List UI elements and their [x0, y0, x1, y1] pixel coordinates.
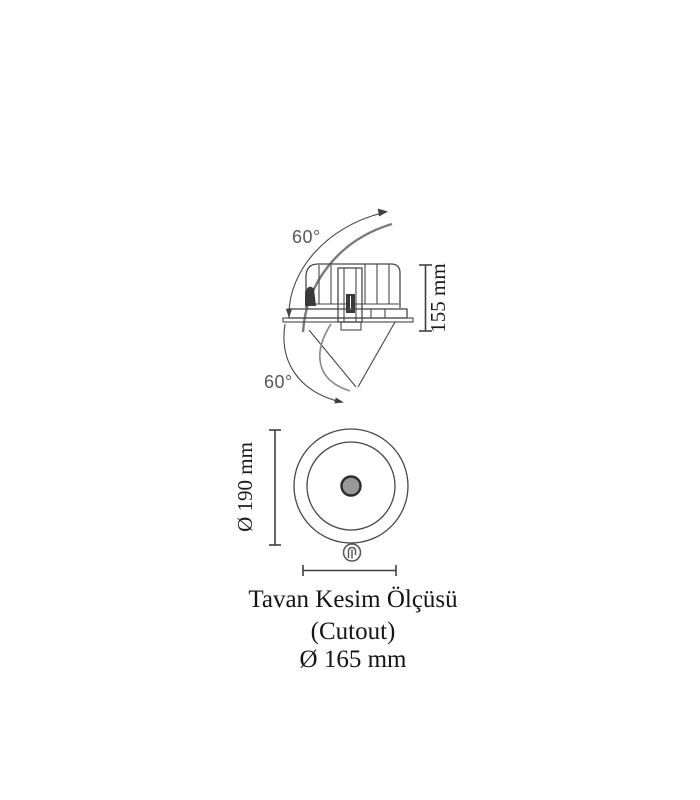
- lamp-neck: [341, 322, 361, 330]
- mounting-clip-icon: [344, 544, 361, 561]
- lamp-center-dot: [342, 477, 361, 496]
- height-dimension-label: 155 mm: [426, 263, 450, 332]
- height-dimension: 155 mm: [419, 263, 450, 332]
- flange-diameter-dimension: Ø 190 mm: [233, 430, 281, 545]
- flange-diameter-label: Ø 190 mm: [233, 442, 257, 532]
- tilt-angle-top-label: 60°: [292, 227, 321, 247]
- beam-cone: [309, 322, 395, 391]
- fixture-bracket: [305, 268, 362, 322]
- caption-cutout-diameter: Ø 165 mm: [300, 646, 408, 673]
- diagram-canvas: 60°: [0, 0, 700, 800]
- caption-title: Tavan Kesim Ölçüsü: [248, 586, 458, 613]
- front-view: Ø 190 mm: [233, 429, 408, 576]
- cutout-dimension-line: [303, 565, 396, 576]
- downlight-dimension-diagram: 60°: [0, 0, 700, 800]
- caption: Tavan Kesim Ölçüsü (Cutout) Ø 165 mm: [248, 586, 458, 673]
- side-view: 60°: [264, 209, 450, 404]
- tilt-angle-bottom-label: 60°: [264, 372, 293, 392]
- caption-subtitle: (Cutout): [311, 618, 396, 645]
